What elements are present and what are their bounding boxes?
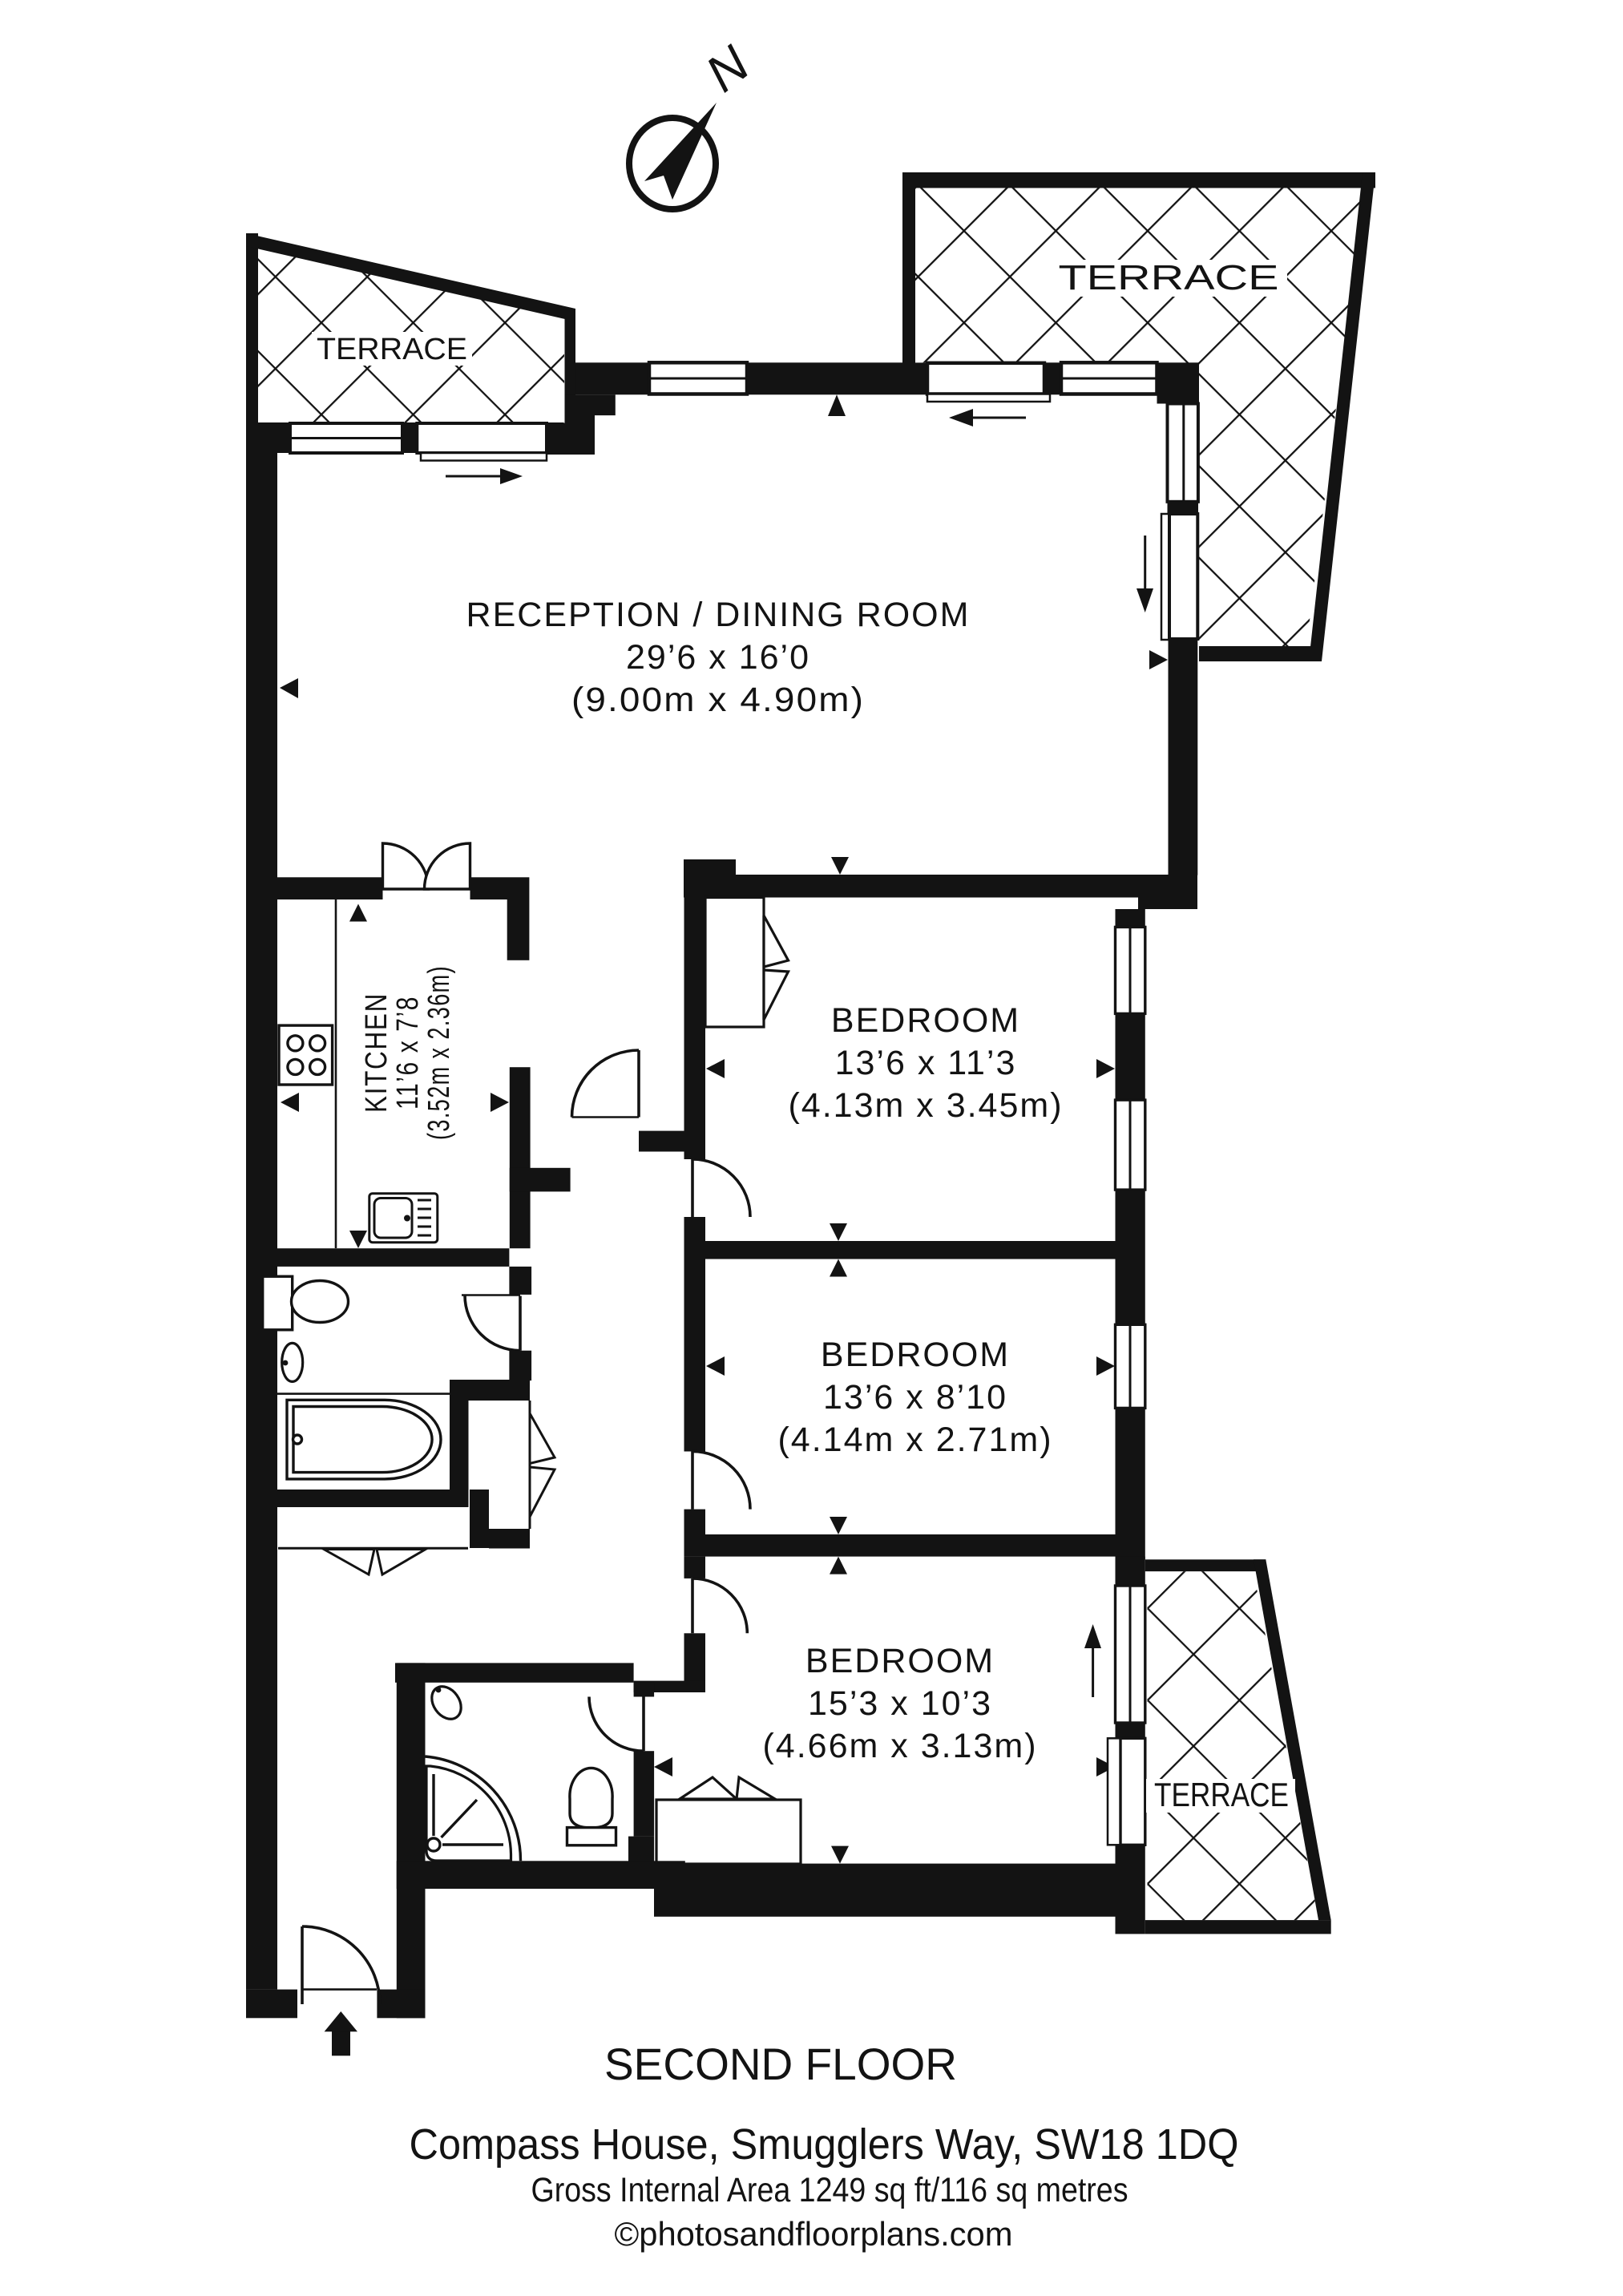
svg-text:KITCHEN: KITCHEN (360, 992, 394, 1113)
svg-text:SECOND FLOOR: SECOND FLOOR (604, 2039, 957, 2089)
svg-text:BEDROOM: BEDROOM (821, 1336, 1010, 1374)
svg-text:BEDROOM: BEDROOM (831, 1001, 1020, 1040)
svg-text:(4.14m x 2.71m): (4.14m x 2.71m) (777, 1421, 1052, 1459)
svg-text:29’6 x 16’0: 29’6 x 16’0 (626, 638, 810, 677)
svg-text:Gross Internal Area 1249 sq ft: Gross Internal Area 1249 sq ft/116 sq me… (531, 2171, 1128, 2209)
svg-text:©photosandfloorplans.com: ©photosandfloorplans.com (615, 2215, 1013, 2253)
svg-text:13’6 x 11’3: 13’6 x 11’3 (835, 1044, 1017, 1082)
svg-text:RECEPTION / DINING ROOM: RECEPTION / DINING ROOM (466, 596, 971, 634)
svg-text:13’6 x 8’10: 13’6 x 8’10 (823, 1378, 1007, 1417)
svg-text:(3.52m x 2.36m): (3.52m x 2.36m) (422, 965, 456, 1140)
svg-text:15’3 x 10’3: 15’3 x 10’3 (808, 1684, 992, 1723)
svg-text:(4.66m x 3.13m): (4.66m x 3.13m) (762, 1727, 1037, 1765)
svg-text:TERRACE: TERRACE (1059, 258, 1279, 297)
svg-text:(9.00m x 4.90m): (9.00m x 4.90m) (571, 681, 865, 719)
svg-text:11’6 x 7’8: 11’6 x 7’8 (391, 996, 425, 1110)
svg-text:Compass House, Smugglers Way,: Compass House, Smugglers Way, SW18 1DQ (410, 2120, 1239, 2169)
svg-text:TERRACE: TERRACE (1154, 1776, 1289, 1813)
svg-text:TERRACE: TERRACE (317, 333, 467, 366)
svg-text:(4.13m x 3.45m): (4.13m x 3.45m) (788, 1086, 1063, 1125)
svg-text:BEDROOM: BEDROOM (805, 1642, 995, 1680)
